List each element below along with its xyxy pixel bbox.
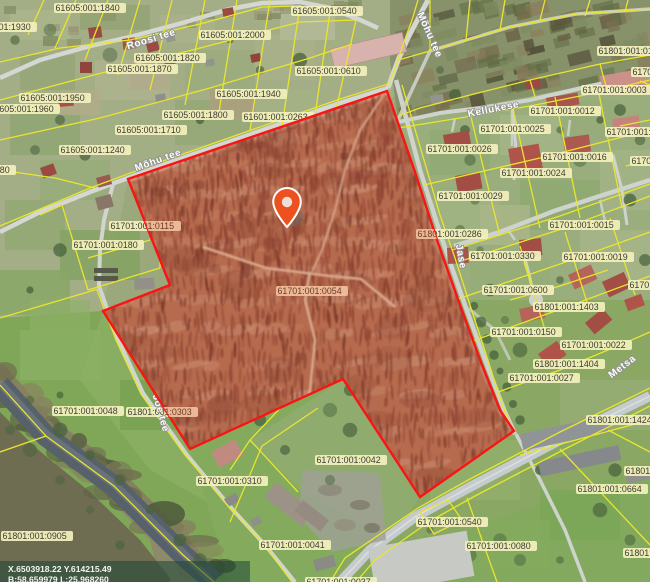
svg-text:61605:001:1240: 61605:001:1240 bbox=[61, 145, 125, 155]
svg-text:61605:001:1280: 61605:001:1280 bbox=[0, 165, 10, 175]
svg-text:61701:001:0540: 61701:001:0540 bbox=[418, 517, 482, 527]
svg-text:61605:001:1870: 61605:001:1870 bbox=[108, 64, 172, 74]
svg-text:61701:001:0600: 61701:001:0600 bbox=[484, 285, 548, 295]
svg-text:61801:001:0664: 61801:001:0664 bbox=[625, 548, 650, 558]
svg-text:61605:001:1930: 61605:001:1930 bbox=[0, 22, 31, 32]
svg-text:61701:001:0026: 61701:001:0026 bbox=[428, 144, 492, 154]
svg-text:61605:001:1950: 61605:001:1950 bbox=[21, 93, 85, 103]
svg-text:61701:001:0016: 61701:001:0016 bbox=[607, 127, 650, 137]
svg-text:61701:001:0037: 61701:001:0037 bbox=[307, 577, 371, 582]
svg-text:61801:001:1404: 61801:001:1404 bbox=[535, 359, 599, 369]
svg-text:61701:001:0019: 61701:001:0019 bbox=[564, 252, 628, 262]
svg-text:61701:001:0150: 61701:001:0150 bbox=[630, 280, 650, 290]
svg-text:61701:001:0330: 61701:001:0330 bbox=[471, 251, 535, 261]
svg-text:61701:001:0024: 61701:001:0024 bbox=[502, 168, 566, 178]
svg-text:61605:001:0610: 61605:001:0610 bbox=[297, 66, 361, 76]
svg-text:61605:001:1820: 61605:001:1820 bbox=[136, 53, 200, 63]
svg-text:61605:001:1710: 61605:001:1710 bbox=[117, 125, 181, 135]
svg-text:61801:001:0123: 61801:001:0123 bbox=[599, 46, 650, 56]
svg-text:61701:001:0027: 61701:001:0027 bbox=[510, 373, 574, 383]
svg-text:B:58.659979 L:25.968260: B:58.659979 L:25.968260 bbox=[8, 575, 109, 583]
svg-text:61701:001:0048: 61701:001:0048 bbox=[54, 406, 118, 416]
svg-text:61701:001:0180: 61701:001:0180 bbox=[74, 240, 138, 250]
svg-text:61701:001:0054: 61701:001:0054 bbox=[278, 286, 342, 296]
svg-text:61701:001:0015: 61701:001:0015 bbox=[550, 220, 614, 230]
svg-text:61605:001:1960: 61605:001:1960 bbox=[0, 104, 54, 114]
svg-text:61701:001:0022: 61701:001:0022 bbox=[562, 340, 626, 350]
svg-text:61701:001:0003: 61701:001:0003 bbox=[583, 85, 647, 95]
svg-text:61801:001:0664: 61801:001:0664 bbox=[626, 466, 650, 476]
svg-text:61701:001:0080: 61701:001:0080 bbox=[467, 541, 531, 551]
svg-text:61701:001:0025: 61701:001:0025 bbox=[633, 67, 650, 77]
svg-text:61701:001:0042: 61701:001:0042 bbox=[317, 455, 381, 465]
svg-text:61605:001:1940: 61605:001:1940 bbox=[217, 89, 281, 99]
svg-text:X.6503918.22 Y.614215.49: X.6503918.22 Y.614215.49 bbox=[8, 564, 112, 574]
svg-text:61605:001:1840: 61605:001:1840 bbox=[56, 3, 120, 13]
svg-text:61701:001:0024: 61701:001:0024 bbox=[632, 156, 650, 166]
svg-text:61701:001:0150: 61701:001:0150 bbox=[492, 327, 556, 337]
svg-text:61801:001:1403: 61801:001:1403 bbox=[535, 302, 599, 312]
svg-text:61801:001:0664: 61801:001:0664 bbox=[578, 484, 642, 494]
svg-text:61801:001:1424: 61801:001:1424 bbox=[588, 415, 650, 425]
svg-text:61701:001:0025: 61701:001:0025 bbox=[481, 124, 545, 134]
svg-text:61701:001:0016: 61701:001:0016 bbox=[543, 152, 607, 162]
svg-text:61605:001:2000: 61605:001:2000 bbox=[201, 30, 265, 40]
svg-text:61605:001:1800: 61605:001:1800 bbox=[164, 110, 228, 120]
svg-text:61701:001:0041: 61701:001:0041 bbox=[261, 540, 325, 550]
svg-text:61701:001:0012: 61701:001:0012 bbox=[531, 106, 595, 116]
svg-text:61605:001:0540: 61605:001:0540 bbox=[293, 6, 357, 16]
svg-text:61701:001:0310: 61701:001:0310 bbox=[198, 476, 262, 486]
svg-text:61701:001:0029: 61701:001:0029 bbox=[439, 191, 503, 201]
svg-text:61801:001:0905: 61801:001:0905 bbox=[3, 531, 67, 541]
